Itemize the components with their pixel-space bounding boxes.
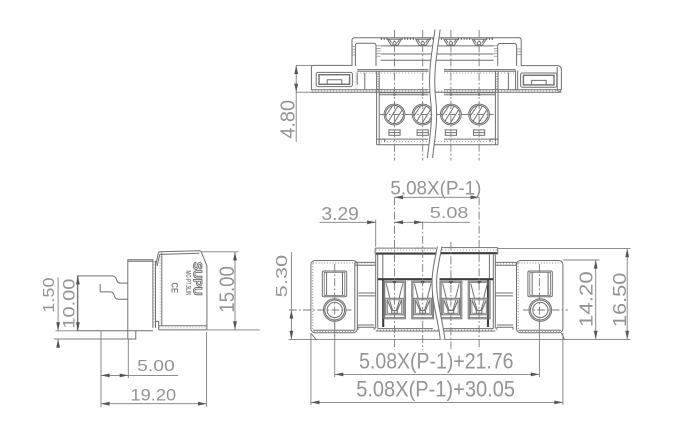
svg-text:16.50: 16.50 xyxy=(609,273,630,328)
svg-text:14.20: 14.20 xyxy=(575,271,596,327)
svg-text:5.08: 5.08 xyxy=(430,205,469,222)
svg-text:5.08X(P-1)+30.05: 5.08X(P-1)+30.05 xyxy=(356,377,515,402)
svg-text:1.50: 1.50 xyxy=(41,277,58,313)
svg-text:3.29: 3.29 xyxy=(322,203,359,224)
svg-text:19.20: 19.20 xyxy=(131,385,177,404)
svg-text:5.08X(P-1): 5.08X(P-1) xyxy=(390,178,481,199)
svg-text:4.80: 4.80 xyxy=(278,100,300,139)
svg-text:CE: CE xyxy=(169,282,180,293)
svg-text:15.00: 15.00 xyxy=(216,266,239,312)
svg-text:5.00: 5.00 xyxy=(137,358,175,375)
svg-text:5.08X(P-1)+21.76: 5.08X(P-1)+21.76 xyxy=(359,349,513,374)
svg-text:MC-P7.5L/N: MC-P7.5L/N xyxy=(184,271,193,296)
svg-text:5.30: 5.30 xyxy=(274,254,291,297)
svg-text:10.00: 10.00 xyxy=(59,279,78,329)
